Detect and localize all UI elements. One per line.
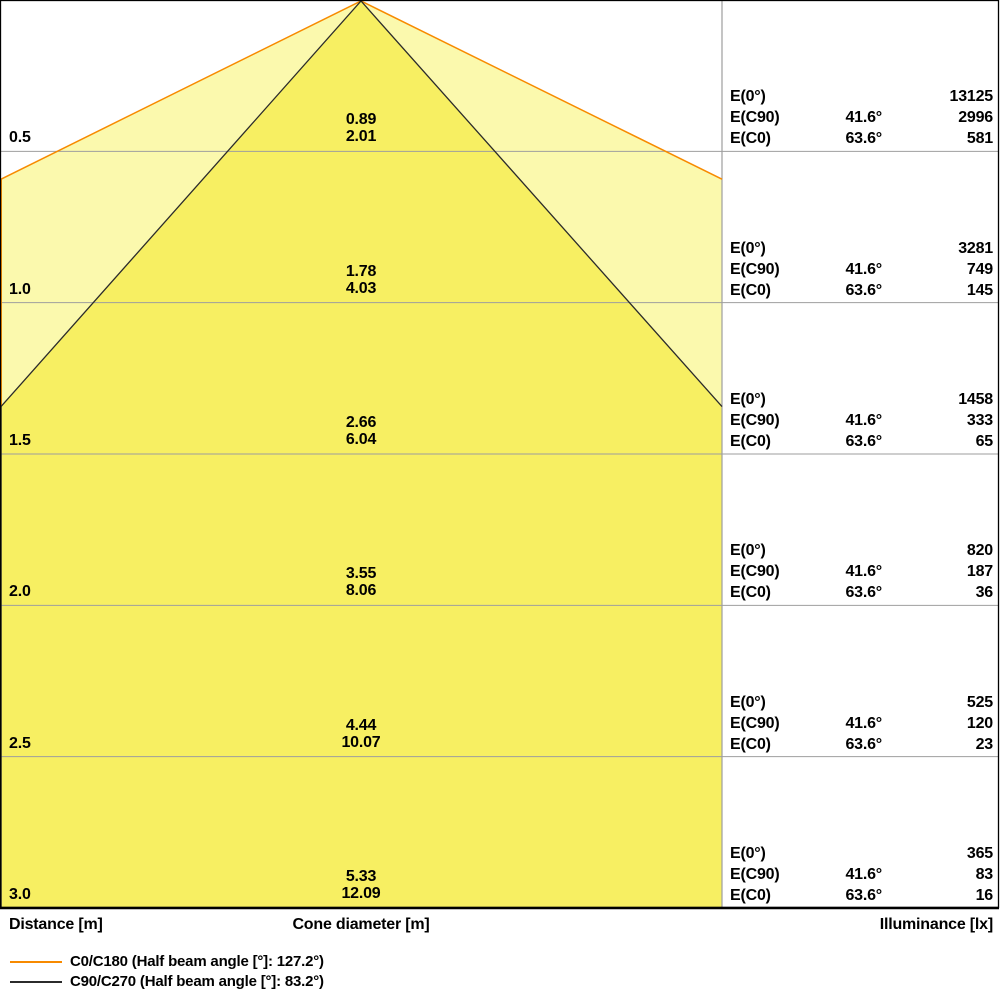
legend-item-c90-c270: C90/C270 (Half beam angle [°]: 83.2°) [0, 972, 1000, 992]
legend-line-c0-c180-icon [10, 961, 62, 963]
cone-chart-svg [0, 0, 1000, 912]
cone-diagram: 0.50.892.01E(0°)13125E(C90)41.6°2996E(C0… [0, 0, 1000, 1000]
legend-label-c90-c270: C90/C270 (Half beam angle [°]: 83.2°) [70, 972, 324, 992]
legend-line-c90-c270-icon [10, 981, 62, 983]
axis-label-distance: Distance [m] [9, 916, 103, 934]
legend-label-c0-c180: C0/C180 (Half beam angle [°]: 127.2°) [70, 952, 324, 972]
axis-label-cone-diameter: Cone diameter [m] [261, 916, 461, 934]
axis-label-illuminance: Illuminance [lx] [880, 916, 993, 934]
legend-item-c0-c180: C0/C180 (Half beam angle [°]: 127.2°) [0, 952, 1000, 972]
